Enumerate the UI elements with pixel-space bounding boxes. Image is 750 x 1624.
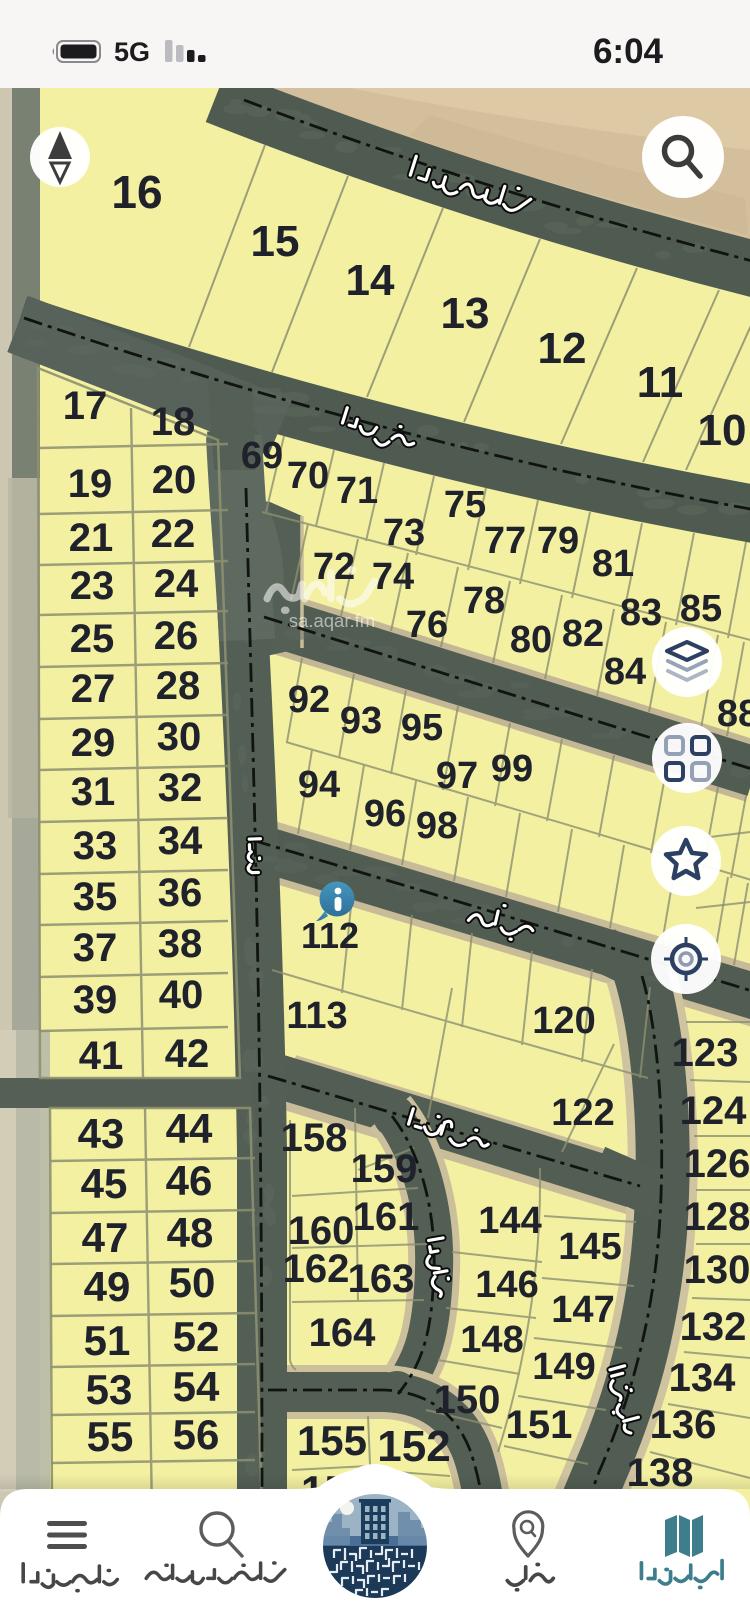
svg-text:25: 25 (70, 617, 115, 661)
svg-text:149: 149 (532, 1346, 595, 1388)
svg-text:93: 93 (340, 700, 382, 742)
svg-text:41: 41 (79, 1034, 124, 1078)
svg-text:69: 69 (241, 435, 283, 477)
svg-text:79: 79 (537, 520, 579, 562)
svg-text:19: 19 (68, 462, 113, 506)
svg-text:33: 33 (73, 824, 118, 868)
svg-text:130: 130 (684, 1248, 750, 1292)
svg-text:10: 10 (698, 406, 747, 455)
svg-text:5G: 5G (114, 37, 150, 67)
svg-text:71: 71 (336, 470, 378, 512)
svg-text:36: 36 (158, 871, 203, 915)
svg-text:40: 40 (159, 973, 204, 1017)
svg-text:43: 43 (78, 1110, 125, 1157)
svg-text:49: 49 (84, 1263, 131, 1310)
svg-text:46: 46 (166, 1157, 213, 1204)
svg-text:27: 27 (71, 667, 116, 711)
svg-text:18: 18 (151, 400, 196, 444)
svg-text:23: 23 (70, 564, 115, 608)
svg-text:6:04: 6:04 (593, 32, 664, 71)
svg-text:20: 20 (152, 458, 197, 502)
svg-text:123: 123 (672, 1031, 739, 1075)
svg-text:159: 159 (351, 1147, 418, 1191)
svg-text:78: 78 (463, 580, 505, 622)
svg-text:70: 70 (287, 455, 329, 497)
svg-text:76: 76 (406, 604, 448, 646)
svg-text:31: 31 (71, 770, 116, 814)
svg-text:163: 163 (348, 1257, 415, 1301)
svg-text:99: 99 (491, 748, 533, 790)
svg-text:162: 162 (283, 1247, 350, 1291)
svg-text:45: 45 (81, 1160, 128, 1207)
svg-text:82: 82 (562, 613, 604, 655)
svg-text:28: 28 (156, 664, 201, 708)
svg-text:128: 128 (684, 1195, 750, 1239)
svg-text:98: 98 (416, 805, 458, 847)
svg-text:75: 75 (444, 484, 486, 526)
svg-text:48: 48 (167, 1209, 214, 1256)
svg-text:77: 77 (484, 520, 526, 562)
svg-text:74: 74 (372, 556, 414, 598)
svg-text:95: 95 (401, 707, 443, 749)
svg-text:113: 113 (286, 995, 347, 1037)
svg-text:155: 155 (297, 1417, 367, 1464)
svg-text:12: 12 (538, 324, 587, 373)
svg-text:80: 80 (510, 619, 552, 661)
svg-text:120: 120 (532, 1000, 595, 1042)
svg-text:112: 112 (301, 915, 359, 956)
svg-text:47: 47 (82, 1214, 129, 1261)
svg-text:81: 81 (592, 543, 634, 585)
svg-text:96: 96 (364, 793, 406, 835)
svg-text:29: 29 (71, 721, 116, 765)
svg-text:144: 144 (478, 1200, 541, 1242)
svg-text:51: 51 (84, 1317, 131, 1364)
svg-text:158: 158 (281, 1116, 348, 1160)
svg-text:88: 88 (717, 693, 750, 735)
svg-text:14: 14 (346, 256, 395, 305)
svg-text:54: 54 (173, 1363, 220, 1410)
svg-text:122: 122 (551, 1092, 614, 1134)
svg-text:17: 17 (63, 384, 108, 428)
svg-text:34: 34 (158, 819, 203, 863)
svg-text:97: 97 (436, 755, 478, 797)
svg-text:55: 55 (87, 1413, 134, 1460)
svg-text:126: 126 (684, 1142, 750, 1186)
svg-text:22: 22 (151, 512, 196, 556)
svg-text:147: 147 (551, 1289, 614, 1331)
svg-text:148: 148 (460, 1319, 523, 1361)
svg-text:53: 53 (86, 1366, 133, 1413)
svg-text:94: 94 (298, 764, 340, 806)
svg-text:145: 145 (558, 1226, 621, 1268)
svg-text:38: 38 (158, 922, 203, 966)
svg-text:92: 92 (288, 679, 330, 721)
svg-text:73: 73 (383, 512, 425, 554)
svg-text:39: 39 (73, 978, 118, 1022)
svg-text:35: 35 (73, 875, 118, 919)
svg-text:152: 152 (377, 1422, 450, 1471)
svg-text:sa.aqar.fm: sa.aqar.fm (289, 610, 375, 631)
svg-text:146: 146 (475, 1264, 538, 1306)
svg-text:11: 11 (637, 358, 684, 407)
svg-text:37: 37 (73, 926, 118, 970)
svg-text:83: 83 (620, 592, 662, 634)
svg-text:21: 21 (69, 516, 114, 560)
svg-text:30: 30 (157, 715, 202, 759)
svg-text:26: 26 (154, 614, 199, 658)
svg-text:161: 161 (353, 1195, 420, 1239)
svg-text:136: 136 (650, 1403, 717, 1447)
svg-text:24: 24 (154, 562, 199, 606)
svg-text:134: 134 (669, 1356, 736, 1400)
svg-text:50: 50 (169, 1259, 216, 1306)
svg-text:84: 84 (604, 651, 646, 693)
svg-text:132: 132 (680, 1305, 747, 1349)
svg-text:164: 164 (309, 1311, 376, 1355)
svg-text:13: 13 (441, 289, 490, 338)
svg-text:32: 32 (158, 766, 203, 810)
svg-text:42: 42 (165, 1032, 210, 1076)
svg-text:124: 124 (680, 1089, 747, 1133)
svg-text:16: 16 (111, 166, 162, 218)
svg-text:15: 15 (251, 217, 300, 266)
svg-text:151: 151 (506, 1403, 573, 1447)
svg-text:85: 85 (680, 588, 722, 630)
svg-text:150: 150 (434, 1378, 501, 1422)
svg-text:52: 52 (173, 1313, 220, 1360)
svg-text:44: 44 (166, 1105, 213, 1152)
svg-text:56: 56 (173, 1411, 220, 1458)
